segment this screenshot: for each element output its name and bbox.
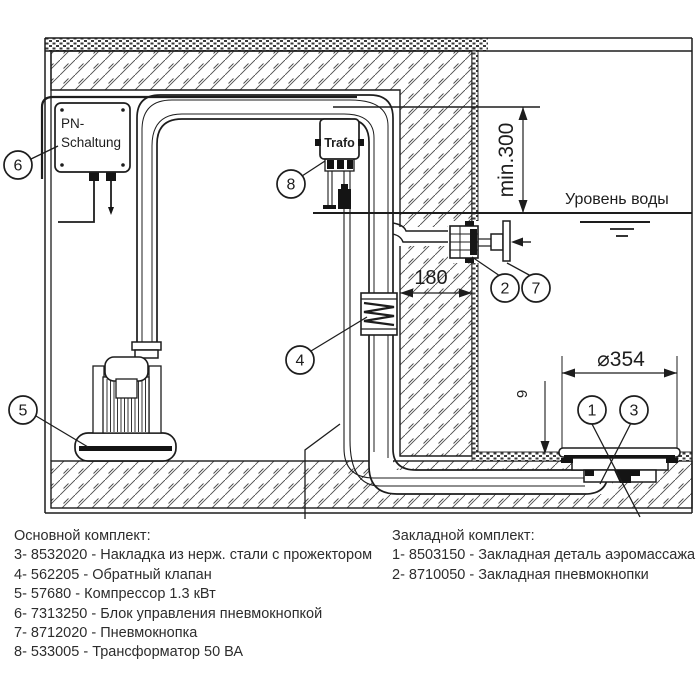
dim-depth-label: 9 <box>514 390 531 398</box>
left-wall <box>45 38 51 513</box>
callout-2-number: 2 <box>501 281 510 298</box>
dim-min300-label: min.300 <box>495 123 518 198</box>
main-kit-title: Основной комплект: <box>14 527 389 546</box>
water-level-label: Уровень воды <box>565 191 669 208</box>
main-kit-item: 8- 533005 - Трансформатор 50 ВА <box>14 643 389 662</box>
control-box: PN- Schaltung <box>42 97 357 222</box>
technical-diagram-page: Trafo PN- Schaltung <box>0 0 700 700</box>
callout-5: 5 <box>9 396 88 447</box>
transformer-label: Trafo <box>324 136 355 150</box>
main-kit-item: 4- 562205 - Обратный клапан <box>14 566 389 585</box>
callout-6-number: 6 <box>14 158 23 175</box>
dimension-depth: 9 <box>514 381 550 454</box>
main-kit-item: 5- 57680 - Компрессор 1.3 кВт <box>14 585 389 604</box>
callout-4: 4 <box>286 317 367 374</box>
ceiling-structure <box>45 38 692 51</box>
main-kit-item: 3- 8532020 - Накладка из нерж. стали с п… <box>14 546 389 565</box>
dim-diameter-label: ⌀354 <box>597 348 645 371</box>
transformer: Trafo <box>315 119 364 209</box>
callout-8-number: 8 <box>287 177 296 194</box>
dim-180-label: 180 <box>414 267 447 289</box>
pneumo-button <box>448 221 531 263</box>
cable <box>58 181 94 222</box>
embedded-kit-title: Закладной комплект: <box>392 527 697 546</box>
plug <box>338 189 351 209</box>
callout-3-number: 3 <box>630 403 639 420</box>
ceiling-brick-band <box>45 38 488 51</box>
embedded-kit-item: 2- 8710050 - Закладная пневмокнопки <box>392 566 697 585</box>
dimension-min300: min.300 <box>495 107 528 213</box>
callout-5-number: 5 <box>19 403 28 420</box>
press-arrow <box>511 238 523 247</box>
main-kit-column: Основной комплект: 3- 8532020 - Накладка… <box>14 527 389 663</box>
embedded-kit-column: Закладной комплект: 1- 8503150 - Закладн… <box>392 527 697 585</box>
control-box-label-2: Schaltung <box>61 135 121 150</box>
main-kit-item: 7- 8712020 - Пневмокнопка <box>14 624 389 643</box>
embedded-body <box>572 458 668 470</box>
callout-1-number: 1 <box>588 403 597 420</box>
main-kit-item: 6- 7313250 - Блок управления пневмокнопк… <box>14 605 389 624</box>
callout-6: 6 <box>4 146 58 179</box>
callout-4-number: 4 <box>296 353 305 370</box>
callout-8: 8 <box>277 161 325 198</box>
check-valve <box>361 293 397 335</box>
control-box-label-1: PN- <box>61 116 84 131</box>
pipe-union <box>132 342 161 350</box>
embedded-kit-item: 1- 8503150 - Закладная деталь аэромассаж… <box>392 546 697 565</box>
parts-list: Основной комплект: 3- 8532020 - Накладка… <box>0 527 700 700</box>
compressor <box>75 342 176 461</box>
callout-2: 2 <box>472 257 519 302</box>
installation-diagram: Trafo PN- Schaltung <box>0 0 700 522</box>
button-face-plate <box>503 221 510 261</box>
dimension-diameter: ⌀354 <box>562 348 677 448</box>
callout-7-number: 7 <box>532 281 541 298</box>
motor-dome <box>105 357 148 381</box>
